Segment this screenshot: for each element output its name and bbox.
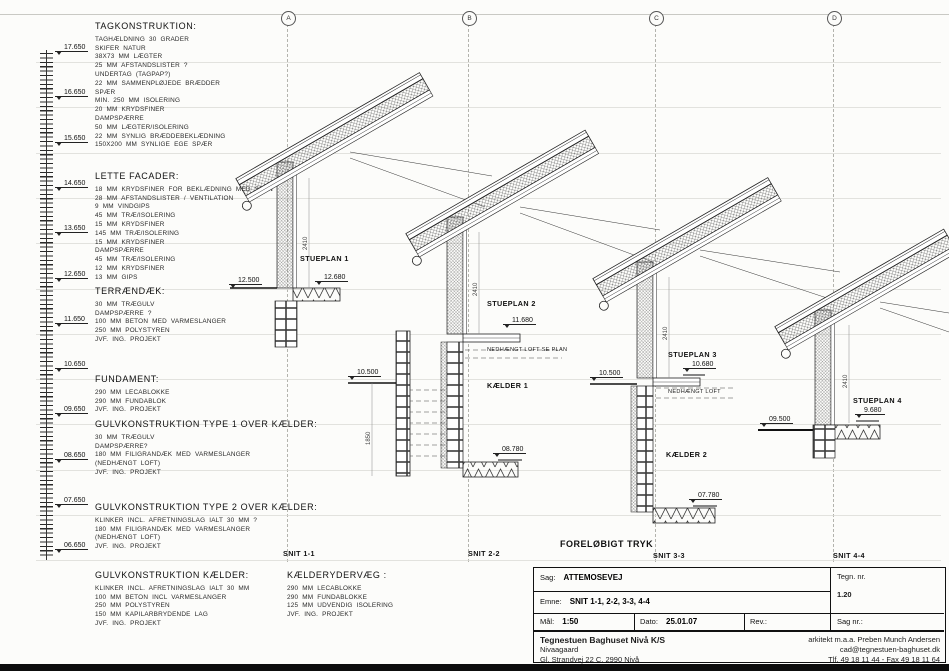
- note-line: 100 MM BETON INCL VARMESLANGER: [95, 594, 249, 603]
- note-title: KÆLDERYDERVÆG :: [287, 571, 393, 580]
- wall-dim-2: 2410: [473, 283, 479, 296]
- emne-value: SNIT 1-1, 2-2, 3-3, 4-4: [570, 597, 650, 606]
- drawing-sheet: A B C D 17.65016.65015.65014.65013.65012…: [0, 0, 949, 671]
- level-10500-s3: 10.500: [590, 370, 623, 378]
- level-12500: 12.500: [229, 277, 262, 285]
- dato-cell: Dato: 25.01.07: [640, 617, 697, 626]
- tegn-nr-label: Tegn. nr.: [837, 572, 866, 581]
- sag-nr-label: Sag nr.:: [837, 617, 863, 626]
- sag-value: ATTEMOSEVEJ: [564, 573, 623, 582]
- sag-nr-cell: Sag nr.:: [837, 617, 869, 626]
- kaelder-2-label: KÆLDER 2: [666, 450, 707, 459]
- level-09500: 09.500: [760, 416, 793, 424]
- title-block: Sag: ATTEMOSEVEJ Emne: SNIT 1-1, 2-2, 3-…: [533, 567, 946, 663]
- maal-value: 1:50: [562, 617, 578, 626]
- nedhaengt-loft-se-plan-note: NEDHÆNGT LOFT SE PLAN: [487, 347, 567, 353]
- firm-line2: Nivaagaard: [540, 645, 665, 655]
- kaelder-1-label: KÆLDER 1: [487, 381, 528, 390]
- firm-name: Tegnestuen Baghuset Nivå K/S: [540, 635, 665, 645]
- level-08780: 08.780: [493, 446, 526, 454]
- dato-label: Dato:: [640, 617, 658, 626]
- scan-bottom-edge: [0, 664, 949, 671]
- note-line: 150 MM KAPILARBRYDENDE LAG: [95, 611, 249, 620]
- stueplan-3-label: STUEPLAN 3: [668, 350, 717, 359]
- note-line: 290 MM LECABLOKKE: [287, 585, 393, 594]
- architect-name: arkitekt m.a.a. Preben Munch Andersen: [808, 635, 940, 645]
- snit-4-4-label: SNIT 4-4: [833, 551, 865, 560]
- emne-row: Emne: SNIT 1-1, 2-2, 3-3, 4-4: [540, 597, 650, 606]
- nedhaengt-loft-note: NEDHÆNGT LOFT: [668, 389, 721, 395]
- maal-label: Mål:: [540, 617, 554, 626]
- note-line: JVF. ING. PROJEKT: [95, 620, 249, 629]
- stueplan-1-label: STUEPLAN 1: [300, 254, 349, 263]
- maal-cell: Mål: 1:50: [540, 617, 578, 626]
- snit-3-3-label: SNIT 3-3: [653, 551, 685, 560]
- note-line: 290 MM FUNDABLOKKE: [287, 594, 393, 603]
- architect-contact: arkitekt m.a.a. Preben Munch Andersen ca…: [808, 635, 940, 665]
- stueplan-4-label: STUEPLAN 4: [853, 396, 902, 405]
- emne-label: Emne:: [540, 597, 562, 606]
- level-9680: 9.680: [855, 407, 885, 415]
- wall-dim-3: 2410: [663, 327, 669, 340]
- dato-value: 25.01.07: [666, 617, 697, 626]
- rev-label: Rev.:: [750, 617, 767, 626]
- level-10500-s2: 10.500: [348, 369, 381, 377]
- wall-dim-1: 2410: [303, 237, 309, 250]
- level-11680: 11.680: [503, 317, 536, 325]
- basement-dim-1850: 1850: [366, 432, 372, 445]
- architect-email: cad@tegnestuen-baghuset.dk: [808, 645, 940, 655]
- firm-address: Tegnestuen Baghuset Nivå K/S Nivaagaard …: [540, 635, 665, 665]
- level-07780: 07.780: [689, 492, 722, 500]
- note-kaelderydervaeg: KÆLDERYDERVÆG :290 MM LECABLOKKE290 MM F…: [287, 571, 393, 620]
- rev-cell: Rev.:: [750, 617, 773, 626]
- tegn-nr-value: 1.20: [837, 590, 852, 599]
- preliminary-print-stamp: FORELØBIGT TRYK: [560, 539, 653, 549]
- wall-dim-4: 2410: [843, 375, 849, 388]
- note-line: 125 MM UDVENDIG ISOLERING: [287, 602, 393, 611]
- snit-2-2-label: SNIT 2-2: [468, 549, 500, 558]
- note-line: JVF. ING. PROJEKT: [287, 611, 393, 620]
- sag-row: Sag: ATTEMOSEVEJ: [540, 573, 623, 582]
- sag-label: Sag:: [540, 573, 555, 582]
- level-12680: 12.680: [315, 274, 348, 282]
- note-line: KLINKER INCL. AFRETNINGSLAG IALT 30 MM: [95, 585, 249, 594]
- level-10680: 10.680: [683, 361, 716, 369]
- snit-1-1-label: SNIT 1-1: [283, 549, 315, 558]
- note-title: GULVKONSTRUKTION KÆLDER:: [95, 571, 249, 580]
- note-gulv-kaelder: GULVKONSTRUKTION KÆLDER:KLINKER INCL. AF…: [95, 571, 249, 629]
- stueplan-2-label: STUEPLAN 2: [487, 299, 536, 308]
- note-line: 250 MM POLYSTYREN: [95, 602, 249, 611]
